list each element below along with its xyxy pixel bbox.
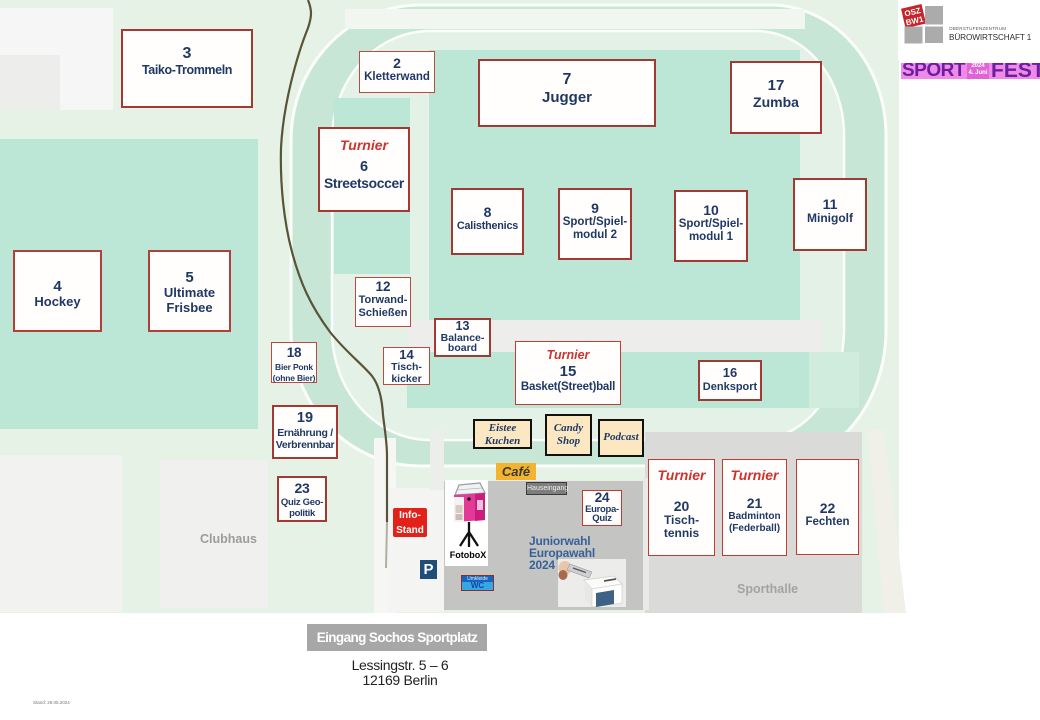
svg-text:OBERSTUFENZENTRUM: OBERSTUFENZENTRUM: [949, 26, 1006, 31]
svg-text:BÜROWIRTSCHAFT 1: BÜROWIRTSCHAFT 1: [949, 32, 1032, 42]
